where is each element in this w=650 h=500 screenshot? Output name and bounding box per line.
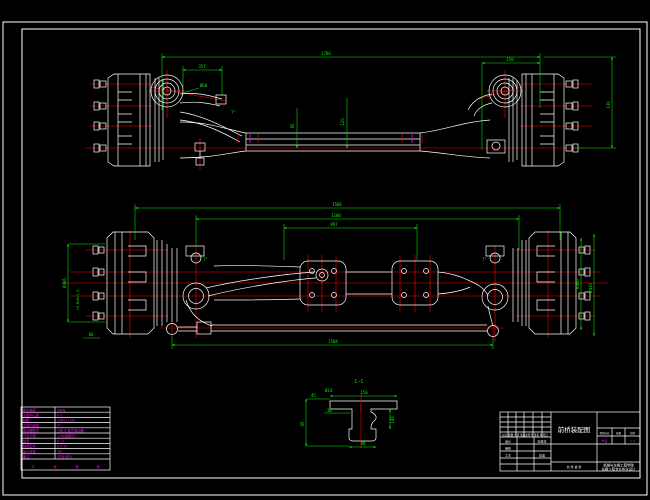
dim-label: 10-M20×1.5 xyxy=(76,290,80,310)
drawing-title: 前桥装配图 xyxy=(558,425,591,434)
spec-row-value: 1586 (+20) xyxy=(57,419,75,423)
row-check-label: 审核 xyxy=(505,446,511,451)
dim-label: 1786 xyxy=(321,51,331,56)
dim-label: Ø60 xyxy=(200,83,208,88)
dim-label: 45 xyxy=(311,393,316,398)
section-view: C-C 150 Ø14 45 30 140 80 95 xyxy=(300,379,397,448)
revision-grid: 标记 处数 分区 更改文件号 签名 年月日 xyxy=(500,412,551,437)
dim-label: 7° xyxy=(203,257,208,262)
dim-label: 7° xyxy=(231,110,236,115)
section-label: C-C xyxy=(354,379,363,385)
spec-footer-cell: 第 xyxy=(75,464,79,469)
dim-label: 357 xyxy=(198,64,206,69)
org-name-line2: 车辆工程专业毕业设计 xyxy=(602,467,637,472)
dim-label: 1586 xyxy=(332,202,342,207)
dim-label: 30 xyxy=(327,408,332,413)
dim-label: Ø14 xyxy=(325,388,333,393)
top-view: 1786 357 150 130 85 120 7° Ø60 xyxy=(85,51,616,170)
front-view: 1586 1100 897 1504 Ø406 10-M20×1.5 Ø400 … xyxy=(62,202,608,349)
left-knuckle xyxy=(172,246,328,326)
section-dimensions: 150 Ø14 45 30 140 80 95 xyxy=(300,388,397,447)
dim-label: 150 xyxy=(506,57,514,62)
top-view-centerlines xyxy=(85,70,592,170)
spec-footer: 共 张 第 张 xyxy=(31,464,100,469)
wheel-studs xyxy=(566,80,578,152)
steering-arm-left-top xyxy=(180,93,242,165)
dim-label: Ø406 xyxy=(62,278,67,288)
spec-row-value: (毕业设计) xyxy=(57,454,72,459)
dim-label: 7° xyxy=(482,257,487,262)
title-block: 标记 处数 分区 更改文件号 签名 年月日 设计 审核 工艺 标准化 批准 前桥… xyxy=(500,412,640,472)
spec-row-label: 最大转角 xyxy=(23,449,36,454)
scale-value: 1:2 xyxy=(630,439,635,443)
axle-beam-top xyxy=(180,120,490,158)
spec-row-label: 额定轴荷 xyxy=(23,407,37,412)
signature-rows: 设计 审核 工艺 标准化 批准 xyxy=(500,437,551,471)
dim-label: Ø400 xyxy=(575,279,580,289)
drawing-canvas: 1786 357 150 130 85 120 7° Ø60 xyxy=(0,0,650,500)
top-view-dimensions: 1786 357 150 130 85 120 7° Ø60 xyxy=(162,51,616,150)
spec-row-label: 主销内倾角 xyxy=(23,423,39,428)
dim-label: 897 xyxy=(330,222,338,227)
spec-row-value: ≤35(调整后) xyxy=(57,433,76,438)
stage-cells: 阶段标记 质量 比例 毕设 1:2 机械与车辆工程学院 车辆工程专业毕业设计 xyxy=(597,428,640,472)
right-knuckle xyxy=(470,246,518,326)
spec-row-value: 6.0-16 xyxy=(57,445,67,449)
spec-row-label: 备注 xyxy=(23,454,30,459)
steering-arm-right-top xyxy=(468,94,505,153)
dim-label: 86 xyxy=(89,332,94,337)
stage-value: 毕设 xyxy=(601,438,607,443)
spec-row-value: 30kN xyxy=(57,408,66,412)
spec-row-label: 轮辋型号 xyxy=(23,444,36,449)
spec-row-label: 气室行程 xyxy=(23,433,37,438)
scale-header: 比例 xyxy=(630,431,635,435)
spec-footer-cell: 张 xyxy=(53,464,57,469)
dim-label: 1504 xyxy=(328,339,338,344)
mass-header: 质量 xyxy=(616,431,621,435)
dim-label: 130 xyxy=(606,101,611,109)
spec-table: 额定轴荷 30kN 主销中心距 G-1 轮距 1586 (+20) 主销内倾角 … xyxy=(21,407,110,470)
spec-row-label: 主销中心距 xyxy=(23,413,40,418)
spec-row-label: 制动器型式 xyxy=(23,428,40,433)
dim-label: 150 xyxy=(360,390,368,395)
dim-label: 120 xyxy=(340,118,345,126)
spec-row-value: 7° xyxy=(57,424,61,428)
title-cell: 前桥装配图 共 张 第 张 xyxy=(551,425,597,469)
dim-label: 140 xyxy=(390,416,395,424)
dim-label: 80 xyxy=(361,441,366,446)
left-hub-top xyxy=(94,74,183,166)
drawing-frame xyxy=(3,22,647,495)
revision-header: 标记 处数 分区 更改文件号 签名 年月日 xyxy=(502,433,548,437)
dim-label: 85 xyxy=(290,123,295,128)
beam-cross-section xyxy=(330,393,397,448)
spec-row-value: 35° xyxy=(57,450,63,454)
spec-footer-cell: 张 xyxy=(96,464,100,469)
spec-footer-cell: 共 xyxy=(31,464,35,469)
spec-row-label: 轮距 xyxy=(23,418,30,423)
row-standard-label: 标准化 xyxy=(537,439,546,444)
stage-header: 阶段标记 xyxy=(600,431,610,435)
wheel-studs xyxy=(94,80,106,152)
beam-tick-marks xyxy=(238,134,422,143)
dim-label: Ø410 xyxy=(588,283,593,293)
dim-label: 95 xyxy=(300,421,305,426)
right-hub-top xyxy=(489,74,578,166)
sheet-count: 共 张 第 张 xyxy=(567,464,582,469)
spec-row-value: G-1 xyxy=(57,414,63,418)
spec-row-value: 0~2 xyxy=(57,440,64,444)
dim-label: 1100 xyxy=(331,213,341,218)
spec-row-label: 前束 xyxy=(23,439,30,444)
cad-drawing-sheet: 1786 357 150 130 85 120 7° Ø60 xyxy=(0,0,650,500)
row-process-label: 工艺 xyxy=(505,453,511,458)
row-design-label: 设计 xyxy=(505,439,511,444)
row-approve-label: 批准 xyxy=(539,453,545,458)
spec-row-value: 凸轮式 鼓式制动器 xyxy=(57,428,84,433)
tie-rod xyxy=(167,322,499,337)
